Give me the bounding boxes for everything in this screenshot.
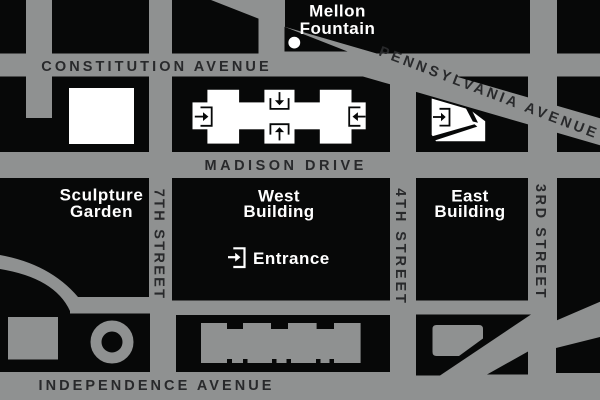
svg-text:7TH STREET: 7TH STREET bbox=[151, 189, 167, 301]
svg-text:Fountain: Fountain bbox=[300, 19, 376, 38]
svg-text:Building: Building bbox=[243, 202, 314, 221]
svg-text:Building: Building bbox=[434, 202, 505, 221]
svg-text:Entrance: Entrance bbox=[253, 249, 330, 268]
svg-text:Garden: Garden bbox=[70, 202, 133, 221]
svg-text:CONSTITUTION AVENUE: CONSTITUTION AVENUE bbox=[41, 59, 272, 75]
svg-text:3RD STREET: 3RD STREET bbox=[532, 184, 548, 300]
svg-text:Mellon: Mellon bbox=[309, 1, 366, 20]
svg-text:MADISON DRIVE: MADISON DRIVE bbox=[205, 158, 367, 174]
svg-text:4TH STREET: 4TH STREET bbox=[392, 188, 408, 306]
svg-text:INDEPENDENCE AVENUE: INDEPENDENCE AVENUE bbox=[38, 378, 274, 394]
